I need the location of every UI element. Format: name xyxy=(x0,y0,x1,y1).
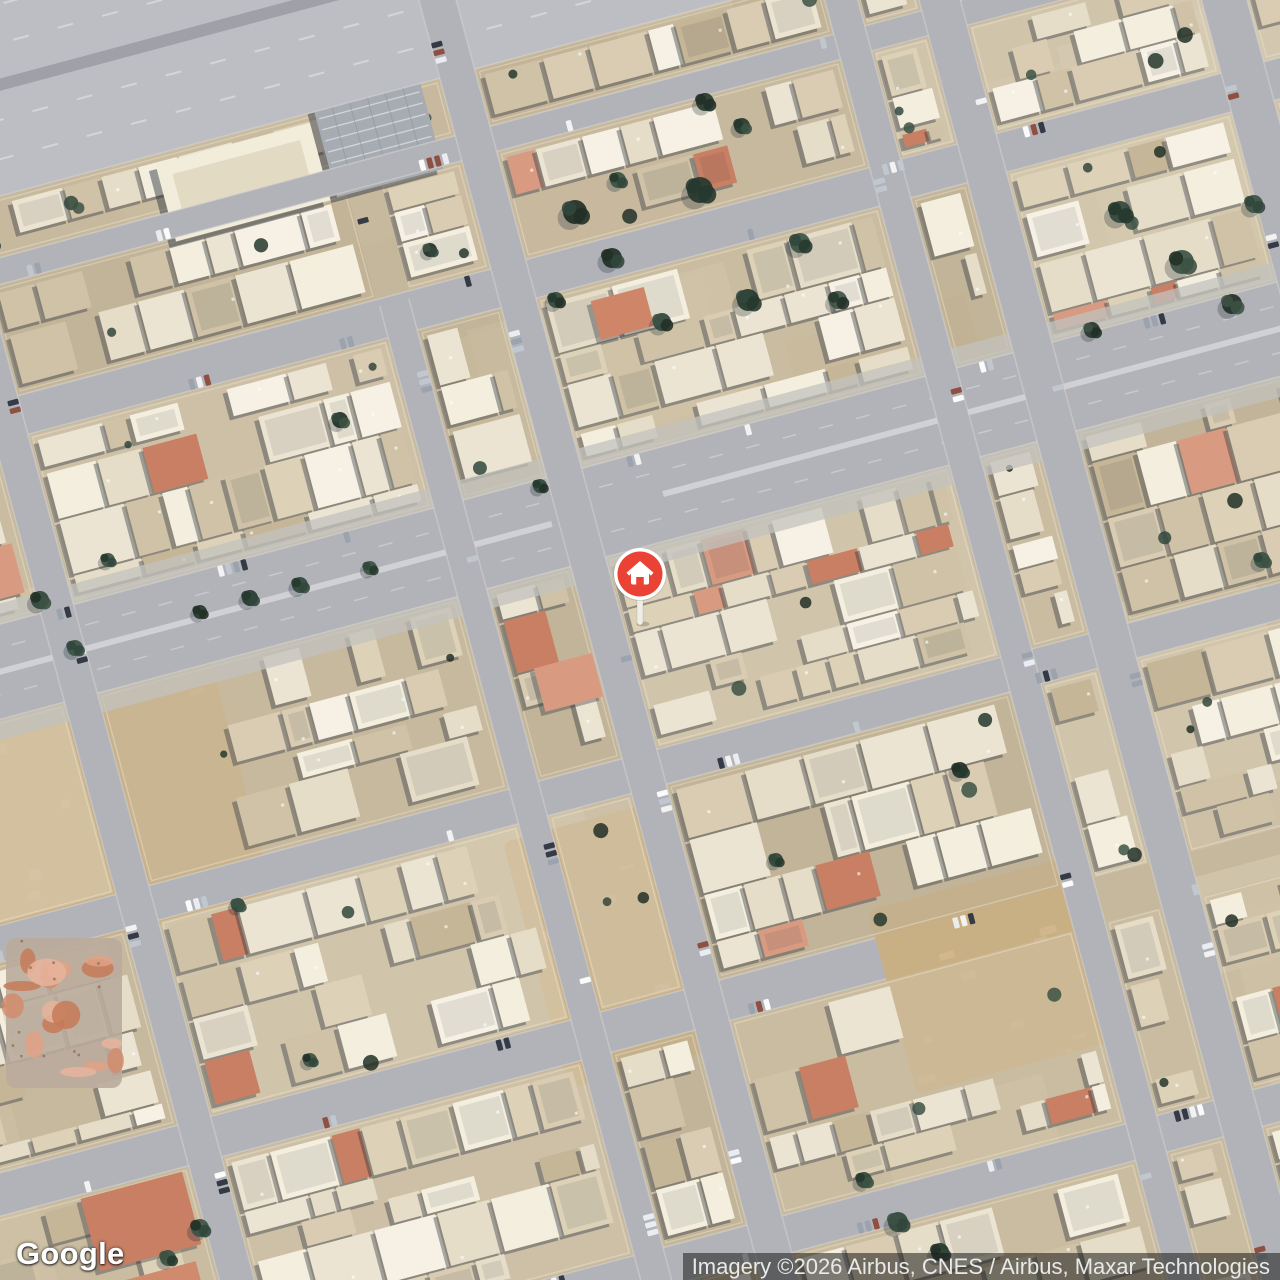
satellite-map-viewport[interactable]: Google Imagery ©2026 Airbus, CNES / Airb… xyxy=(0,0,1280,1280)
imagery-attribution: Imagery ©2026 Airbus, CNES / Airbus, Max… xyxy=(683,1253,1280,1280)
google-logo[interactable]: Google xyxy=(16,1236,125,1272)
satellite-imagery xyxy=(0,0,1280,1280)
map-marker-pin[interactable] xyxy=(610,547,670,627)
